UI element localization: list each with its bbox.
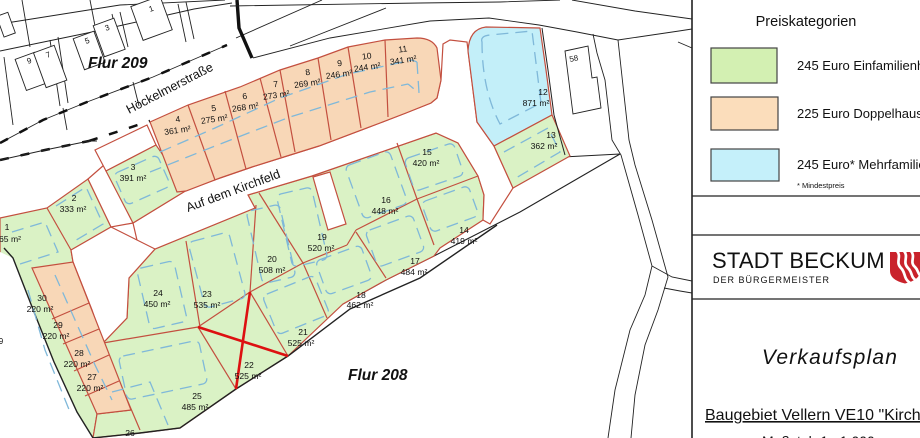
svg-text:420 m²: 420 m² [413,158,440,168]
svg-text:Baugebiet Vellern VE10 "Kirchf: Baugebiet Vellern VE10 "Kirchfeld" [705,407,920,424]
svg-text:485 m²: 485 m² [182,402,209,412]
svg-text:1: 1 [5,222,10,232]
svg-text:220 m²: 220 m² [27,304,54,314]
svg-text:19: 19 [317,232,327,242]
svg-text:20: 20 [267,254,277,264]
svg-text:13: 13 [546,130,556,140]
svg-text:24: 24 [153,288,163,298]
svg-text:22: 22 [244,360,254,370]
svg-text:14: 14 [459,225,469,235]
svg-text:DER BÜRGERMEISTER: DER BÜRGERMEISTER [713,275,830,285]
svg-text:535 m²: 535 m² [194,300,221,310]
svg-text:15: 15 [422,147,432,157]
svg-text:450 m²: 450 m² [144,299,171,309]
svg-text:12: 12 [538,87,548,97]
svg-text:65 m²: 65 m² [0,234,21,244]
svg-text:18: 18 [356,290,366,300]
svg-text:10: 10 [361,50,372,61]
svg-text:220 m²: 220 m² [43,331,70,341]
svg-text:27: 27 [87,372,97,382]
svg-text:21: 21 [298,327,308,337]
svg-text:525 m²: 525 m² [288,338,315,348]
svg-text:16: 16 [381,195,391,205]
svg-text:Flur 209: Flur 209 [88,55,148,72]
svg-text:26: 26 [125,428,135,438]
svg-text:Maßstab 1 : 1.000: Maßstab 1 : 1.000 [762,433,875,438]
svg-text:525 m²: 525 m² [235,371,262,381]
svg-text:17: 17 [410,256,420,266]
svg-text:245 Euro Einfamilienhaus: 245 Euro Einfamilienhaus [797,58,920,73]
svg-text:11: 11 [398,43,408,54]
svg-text:245 Euro* Mehrfamilienhaus: 245 Euro* Mehrfamilienhaus [797,157,920,172]
svg-text:3: 3 [131,162,136,172]
svg-text:* Mindestpreis: * Mindestpreis [797,181,845,190]
svg-text:29: 29 [53,320,63,330]
svg-text:28: 28 [74,348,84,358]
svg-text:25: 25 [192,391,202,401]
svg-text:2: 2 [72,193,77,203]
svg-text:225 Euro Doppelhaus: 225 Euro Doppelhaus [797,106,920,121]
svg-text:Flur 208: Flur 208 [348,367,408,384]
svg-text:362 m²: 362 m² [531,141,558,151]
svg-text:448 m²: 448 m² [372,206,399,216]
svg-text:23: 23 [202,289,212,299]
svg-text:Preiskategorien: Preiskategorien [756,14,857,30]
svg-text:Verkaufsplan: Verkaufsplan [762,346,898,369]
svg-text:STADT BECKUM: STADT BECKUM [712,248,885,273]
svg-text:391 m²: 391 m² [120,173,147,183]
svg-text:520 m²: 520 m² [308,243,335,253]
svg-text:333 m²: 333 m² [60,204,87,214]
svg-text:30: 30 [37,293,47,303]
svg-text:508 m²: 508 m² [259,265,286,275]
svg-text:220 m²: 220 m² [64,359,91,369]
svg-text:871 m²: 871 m² [523,98,550,108]
svg-text:220 m²: 220 m² [77,383,104,393]
svg-text:419 m²: 419 m² [451,236,478,246]
svg-text:484 m²: 484 m² [401,267,428,277]
svg-text:462 m²: 462 m² [347,300,374,310]
svg-text:9: 9 [0,337,4,346]
